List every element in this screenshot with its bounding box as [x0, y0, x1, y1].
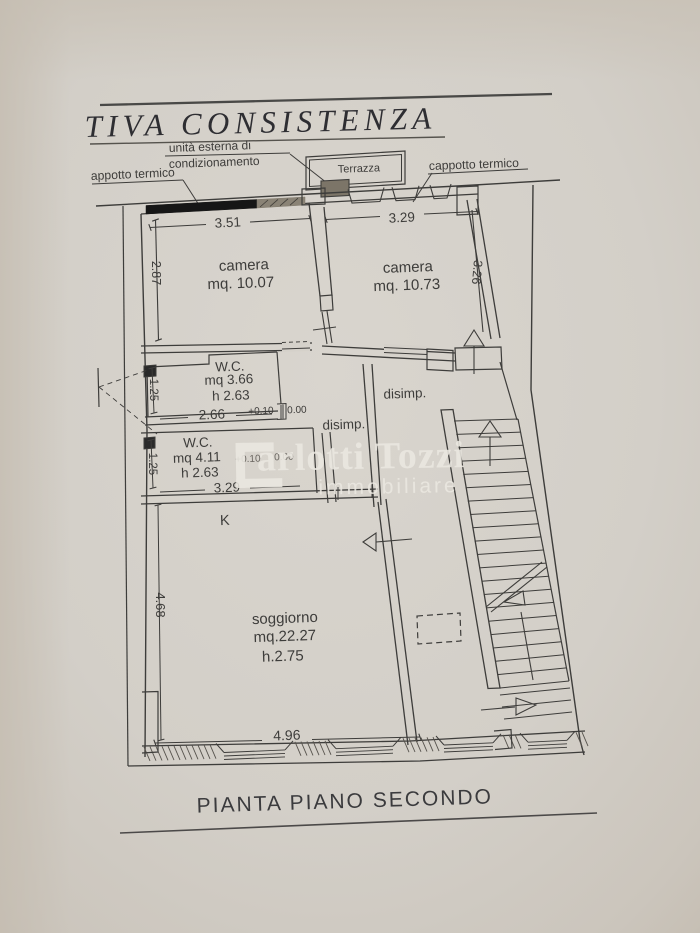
svg-text:disimp.: disimp. [322, 416, 365, 432]
svg-text:h.2.75: h.2.75 [262, 647, 304, 665]
svg-text:mq. 10.07: mq. 10.07 [207, 274, 274, 293]
svg-text:+0.10: +0.10 [248, 406, 274, 418]
svg-text:2.87: 2.87 [149, 261, 163, 285]
svg-text:2.66: 2.66 [198, 407, 225, 423]
svg-text:mq. 10.73: mq. 10.73 [373, 276, 440, 295]
svg-text:4.96: 4.96 [273, 727, 301, 744]
svg-text:camera: camera [383, 258, 434, 277]
svg-text:disimp.: disimp. [383, 385, 426, 401]
svg-text:h 2.63: h 2.63 [212, 387, 250, 403]
svg-text:soggiorno: soggiorno [252, 609, 318, 628]
svg-text:h 2.63: h 2.63 [181, 464, 219, 480]
svg-text:mq.22.27: mq.22.27 [253, 627, 316, 646]
svg-text:arlotti Tozzi: arlotti Tozzi [257, 434, 466, 480]
svg-text:3.29: 3.29 [388, 209, 415, 225]
svg-text:mq 4.11: mq 4.11 [173, 449, 221, 466]
svg-text:3.51: 3.51 [214, 214, 241, 230]
svg-text:0.00: 0.00 [287, 405, 307, 417]
svg-text:4.68: 4.68 [153, 592, 168, 617]
svg-text:camera: camera [219, 256, 270, 275]
svg-text:mq 3.66: mq 3.66 [204, 371, 253, 388]
svg-text:immobiliare: immobiliare [318, 474, 459, 499]
svg-text:K: K [220, 513, 231, 529]
svg-text:3.26: 3.26 [469, 260, 485, 286]
svg-text:1.25: 1.25 [146, 453, 158, 475]
svg-text:unità esterna di: unità esterna di [169, 138, 252, 155]
svg-text:W.C.: W.C. [183, 434, 213, 450]
svg-text:Terrazza: Terrazza [338, 162, 381, 175]
svg-text:1.25: 1.25 [147, 379, 159, 401]
